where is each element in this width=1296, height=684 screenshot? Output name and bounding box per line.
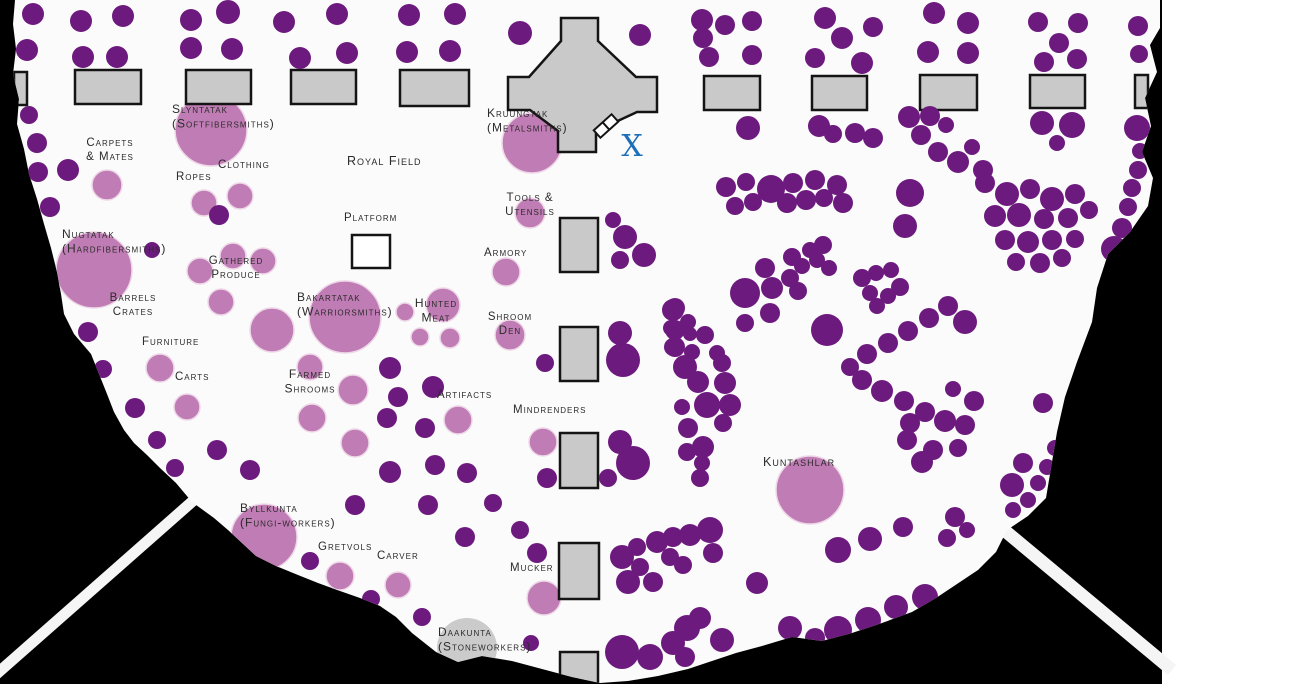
market-dot xyxy=(1130,45,1148,63)
market-dot xyxy=(893,214,917,238)
area-label-mucker: Mucker xyxy=(510,562,554,574)
market-dot xyxy=(418,495,438,515)
vendor-area-dot xyxy=(527,581,561,615)
market-dot xyxy=(678,443,696,461)
market-dot xyxy=(726,197,744,215)
market-dot xyxy=(72,46,94,68)
market-dot xyxy=(1007,253,1025,271)
stall-building[interactable] xyxy=(560,218,598,272)
market-dot xyxy=(1058,208,1078,228)
market-dot xyxy=(714,372,736,394)
market-dot xyxy=(911,451,933,473)
area-label-carts: Carts xyxy=(175,371,210,383)
market-dot xyxy=(959,522,975,538)
area-label-ropes: Ropes xyxy=(176,171,212,183)
vendor-area-dot xyxy=(341,429,369,457)
market-dot xyxy=(125,398,145,418)
market-dot xyxy=(869,298,885,314)
market-dot xyxy=(923,2,945,24)
market-dot xyxy=(457,463,477,483)
market-dot xyxy=(398,4,420,26)
market-dot xyxy=(694,392,720,418)
market-dot xyxy=(425,455,445,475)
market-dot xyxy=(388,387,408,407)
market-map: Slyntatak(Softfibersmiths)Kruungtak(Meta… xyxy=(0,0,1296,684)
market-dot xyxy=(439,40,461,62)
market-dot xyxy=(537,468,557,488)
market-dot xyxy=(683,327,697,341)
market-dot xyxy=(760,303,780,323)
area-label-farmed-shrooms: FarmedShrooms xyxy=(284,367,335,396)
market-dot xyxy=(664,338,682,356)
market-dot xyxy=(984,205,1006,227)
market-dot xyxy=(947,151,969,173)
market-dot xyxy=(1030,111,1054,135)
market-dot xyxy=(511,521,529,539)
map-canvas: Slyntatak(Softfibersmiths)Kruungtak(Meta… xyxy=(0,0,1296,684)
market-dot xyxy=(1080,201,1098,219)
market-dot xyxy=(934,410,956,432)
market-dot xyxy=(713,354,731,372)
market-dot xyxy=(893,517,913,537)
market-dot xyxy=(897,430,917,450)
market-dot xyxy=(444,3,466,25)
market-dot xyxy=(662,299,684,321)
market-dot xyxy=(1123,179,1141,197)
market-dot xyxy=(1033,393,1053,413)
market-dot xyxy=(894,391,914,411)
market-dot xyxy=(484,494,502,512)
market-dot xyxy=(815,189,833,207)
market-dot xyxy=(938,296,958,316)
market-dot xyxy=(336,42,358,64)
market-dot xyxy=(694,455,710,471)
market-dot xyxy=(710,628,734,652)
market-dot xyxy=(28,162,48,182)
market-dot xyxy=(697,517,723,543)
market-dot xyxy=(898,321,918,341)
market-dot xyxy=(1030,475,1046,491)
market-dot xyxy=(629,24,651,46)
market-dot xyxy=(714,414,732,432)
market-dot xyxy=(616,570,640,594)
stall-building[interactable] xyxy=(1135,75,1148,108)
market-dot xyxy=(737,173,755,191)
market-dot xyxy=(605,635,639,669)
market-dot xyxy=(1034,209,1054,229)
vendor-area-dot xyxy=(411,328,429,346)
market-dot xyxy=(377,408,397,428)
market-dot xyxy=(777,193,797,213)
market-dot xyxy=(1020,179,1040,199)
vendor-area-dot xyxy=(326,562,354,590)
vendor-area-dot xyxy=(208,289,234,315)
market-dot xyxy=(796,190,816,210)
market-dot xyxy=(928,142,948,162)
market-dot xyxy=(949,439,967,457)
market-dot xyxy=(736,314,754,332)
vendor-area-dot xyxy=(396,303,414,321)
market-dot xyxy=(1065,184,1085,204)
area-label-kuntashlar: Kuntashlar xyxy=(763,455,835,469)
market-dot xyxy=(637,644,663,670)
vendor-area-dot xyxy=(444,406,472,434)
market-dot xyxy=(896,179,924,207)
market-dot xyxy=(1020,492,1036,508)
market-dot xyxy=(16,39,38,61)
market-dot xyxy=(814,7,836,29)
vendor-area-dot xyxy=(92,170,122,200)
area-label-gretvols: Gretvols xyxy=(318,541,372,553)
market-dot xyxy=(1128,16,1148,36)
market-dot xyxy=(240,460,260,480)
market-dot xyxy=(878,333,898,353)
area-label-platform: Platform xyxy=(344,212,397,224)
market-dot xyxy=(616,446,650,480)
market-dot xyxy=(824,125,842,143)
market-dot xyxy=(833,193,853,213)
market-dot xyxy=(396,41,418,63)
market-dot xyxy=(831,27,853,49)
market-dot xyxy=(273,11,295,33)
market-dot xyxy=(863,17,883,37)
market-dot xyxy=(900,413,920,433)
market-dot xyxy=(301,552,319,570)
market-dot xyxy=(1068,13,1088,33)
market-dot xyxy=(675,647,695,667)
market-dot xyxy=(964,139,980,155)
market-dot xyxy=(22,3,44,25)
market-dot xyxy=(898,106,920,128)
market-dot xyxy=(821,260,837,276)
market-dot xyxy=(742,45,762,65)
market-dot xyxy=(883,262,899,278)
market-dot xyxy=(919,308,939,328)
market-dot xyxy=(995,230,1015,250)
market-dot xyxy=(221,38,243,60)
market-dot xyxy=(689,607,711,629)
market-dot xyxy=(608,321,632,345)
market-dot xyxy=(1053,249,1071,267)
stall-building[interactable] xyxy=(704,76,760,110)
market-dot xyxy=(611,251,629,269)
market-dot xyxy=(814,236,832,254)
vendor-area-dot xyxy=(298,404,326,432)
market-dot xyxy=(20,106,38,124)
market-dot xyxy=(938,529,956,547)
market-dot xyxy=(825,537,851,563)
area-label-royal-field: Royal Field xyxy=(347,154,422,168)
vendor-area-dot xyxy=(174,394,200,420)
area-label-furniture: Furniture xyxy=(142,336,199,348)
vendor-area-dot xyxy=(385,572,411,598)
market-dot xyxy=(871,380,893,402)
market-dot xyxy=(687,371,709,393)
market-dot xyxy=(508,21,532,45)
market-dot xyxy=(209,205,229,225)
market-dot xyxy=(858,527,882,551)
market-dot xyxy=(691,469,709,487)
market-dot xyxy=(1028,12,1048,32)
market-dot xyxy=(606,343,640,377)
market-dot xyxy=(975,173,995,193)
market-dot xyxy=(857,344,877,364)
market-dot xyxy=(628,538,646,556)
market-dot xyxy=(1124,115,1150,141)
market-dot xyxy=(1000,473,1024,497)
market-dot xyxy=(761,277,783,299)
market-dot xyxy=(166,459,184,477)
market-dot xyxy=(742,11,762,31)
market-dot xyxy=(691,9,713,31)
market-dot xyxy=(1005,502,1021,518)
market-dot xyxy=(1007,203,1031,227)
market-dot xyxy=(852,370,872,390)
market-dot xyxy=(148,431,166,449)
stall-building[interactable] xyxy=(560,433,598,488)
market-dot xyxy=(938,117,954,133)
market-dot xyxy=(207,440,227,460)
market-dot xyxy=(755,258,775,278)
market-dot xyxy=(845,123,865,143)
market-dot xyxy=(379,357,401,379)
market-dot xyxy=(632,243,656,267)
vendor-area-dot xyxy=(529,428,557,456)
market-dot xyxy=(1042,230,1062,250)
market-dot xyxy=(289,47,311,69)
market-dot xyxy=(413,608,431,626)
market-dot xyxy=(678,418,698,438)
market-dot xyxy=(911,125,931,145)
market-dot xyxy=(945,381,961,397)
market-dot xyxy=(379,461,401,483)
stall-building[interactable] xyxy=(75,70,141,104)
market-dot xyxy=(643,572,663,592)
market-dot xyxy=(746,572,768,594)
market-dot xyxy=(696,326,714,344)
vendor-area-dot xyxy=(250,308,294,352)
market-dot xyxy=(180,37,202,59)
market-dot xyxy=(699,47,719,67)
market-dot xyxy=(868,265,884,281)
market-dot xyxy=(957,42,979,64)
market-dot xyxy=(57,159,79,181)
x-location-marker[interactable]: X xyxy=(621,129,643,164)
vendor-area-dot xyxy=(338,375,368,405)
market-dot xyxy=(778,616,802,640)
market-dot xyxy=(78,322,98,342)
vendor-area-dot xyxy=(440,328,460,348)
area-label-artifacts: Artifacts xyxy=(437,389,492,401)
market-dot xyxy=(27,133,47,153)
market-dot xyxy=(955,415,975,435)
market-dot xyxy=(112,5,134,27)
market-dot xyxy=(789,282,807,300)
market-dot xyxy=(805,48,825,68)
market-dot xyxy=(345,495,365,515)
market-dot xyxy=(995,182,1019,206)
market-dot xyxy=(811,314,843,346)
market-dot xyxy=(794,258,810,274)
platform-structure[interactable] xyxy=(352,235,390,268)
market-dot xyxy=(703,543,723,563)
area-label-carver: Carver xyxy=(377,550,419,562)
market-dot xyxy=(716,177,736,197)
market-dot xyxy=(964,391,984,411)
stall-building[interactable] xyxy=(186,70,251,104)
market-dot xyxy=(736,116,760,140)
market-dot xyxy=(605,212,621,228)
market-dot xyxy=(953,310,977,334)
market-dot xyxy=(693,28,713,48)
market-dot xyxy=(415,418,435,438)
stall-building[interactable] xyxy=(812,76,867,110)
market-dot xyxy=(920,106,940,126)
stall-building[interactable] xyxy=(291,70,356,104)
market-dot xyxy=(70,10,92,32)
vendor-area-dot xyxy=(227,183,253,209)
market-dot xyxy=(216,0,240,24)
stall-building[interactable] xyxy=(559,543,599,599)
outside-right-area xyxy=(1162,0,1296,684)
market-dot xyxy=(613,225,637,249)
market-dot xyxy=(527,543,547,563)
market-dot xyxy=(783,173,803,193)
market-dot xyxy=(663,320,679,336)
area-label-mindrenders: Mindrenders xyxy=(513,404,586,416)
market-dot xyxy=(599,469,617,487)
market-dot xyxy=(326,3,348,25)
market-dot xyxy=(744,193,762,211)
market-dot xyxy=(730,278,760,308)
market-dot xyxy=(1066,230,1084,248)
market-dot xyxy=(715,15,735,35)
market-dot xyxy=(805,170,825,190)
market-dot xyxy=(863,128,883,148)
market-dot xyxy=(1067,49,1087,69)
market-dot xyxy=(1034,52,1054,72)
market-dot xyxy=(180,9,202,31)
market-dot xyxy=(1030,253,1050,273)
market-dot xyxy=(1049,33,1069,53)
market-dot xyxy=(1119,198,1137,216)
market-dot xyxy=(1049,135,1065,151)
area-label-armory: Armory xyxy=(484,247,527,259)
market-dot xyxy=(1040,187,1064,211)
market-dot xyxy=(674,556,692,574)
market-dot xyxy=(455,527,475,547)
vendor-area-dot xyxy=(492,258,520,286)
market-dot xyxy=(106,46,128,68)
area-label-clothing: Clothing xyxy=(218,159,270,171)
vendor-area-dot xyxy=(146,354,174,382)
stall-building[interactable] xyxy=(560,327,598,381)
market-dot xyxy=(1017,231,1039,253)
market-dot xyxy=(917,41,939,63)
stall-building[interactable] xyxy=(1030,75,1085,108)
stall-building[interactable] xyxy=(920,75,977,110)
market-dot xyxy=(40,197,60,217)
market-dot xyxy=(957,12,979,34)
market-dot xyxy=(536,354,554,372)
market-dot xyxy=(851,52,873,74)
stall-building[interactable] xyxy=(400,70,469,106)
market-dot xyxy=(674,399,690,415)
market-dot xyxy=(1013,453,1033,473)
market-dot xyxy=(1059,112,1085,138)
market-dot xyxy=(719,394,741,416)
market-dot xyxy=(1129,161,1147,179)
